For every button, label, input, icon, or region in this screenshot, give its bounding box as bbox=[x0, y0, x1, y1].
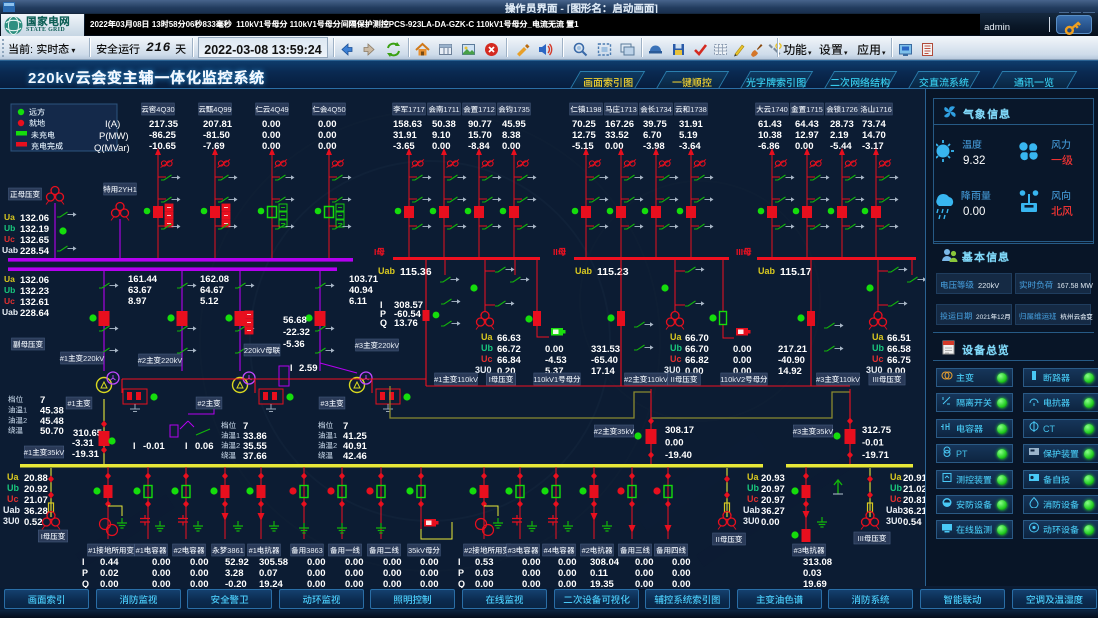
svg-text:Uab: Uab bbox=[378, 264, 396, 277]
svg-text:-3.64: -3.64 bbox=[679, 138, 701, 152]
svg-text:会南1711: 会南1711 bbox=[428, 104, 459, 115]
svg-text:110kV1号母分: 110kV1号母分 bbox=[533, 374, 581, 385]
svg-text:115.17: 115.17 bbox=[780, 264, 812, 279]
svg-text:II母: II母 bbox=[553, 246, 567, 258]
svg-text:远方: 远方 bbox=[29, 107, 45, 118]
svg-text:-3.98: -3.98 bbox=[643, 138, 665, 152]
svg-text:-19.31: -19.31 bbox=[72, 446, 100, 460]
svg-text:I母压变: I母压变 bbox=[489, 374, 514, 385]
svg-text:绕温: 绕温 bbox=[8, 425, 23, 436]
svg-text:-10.65: -10.65 bbox=[149, 138, 177, 152]
svg-text:Q(MVar): Q(MVar) bbox=[94, 140, 130, 154]
svg-text:17.14: 17.14 bbox=[591, 363, 615, 377]
svg-text:Uab: Uab bbox=[2, 244, 18, 256]
svg-text:#3主变220kV: #3主变220kV bbox=[355, 340, 400, 351]
svg-text:5.12: 5.12 bbox=[200, 293, 219, 307]
svg-text:会长1734: 会长1734 bbox=[640, 104, 672, 115]
svg-text:I母压变: I母压变 bbox=[41, 531, 66, 542]
svg-text:马庄1713: 马庄1713 bbox=[605, 104, 637, 115]
svg-text:2.59: 2.59 bbox=[299, 360, 318, 374]
svg-text:油温1: 油温1 bbox=[8, 404, 27, 415]
svg-text:大云1740: 大云1740 bbox=[756, 104, 788, 115]
svg-text:-19.71: -19.71 bbox=[862, 447, 890, 461]
svg-text:228.54: 228.54 bbox=[20, 243, 50, 257]
svg-text:I: I bbox=[185, 439, 188, 452]
svg-text:仁会4Q50: 仁会4Q50 bbox=[312, 104, 345, 115]
svg-text:0.06: 0.06 bbox=[195, 438, 214, 452]
svg-text:仁镇1198: 仁镇1198 bbox=[570, 104, 601, 115]
svg-text:0.00: 0.00 bbox=[502, 138, 521, 152]
svg-text:#1主变220kV: #1主变220kV bbox=[60, 353, 105, 364]
svg-text:绕温: 绕温 bbox=[221, 450, 236, 461]
svg-text:#2主变220kV: #2主变220kV bbox=[138, 355, 183, 366]
svg-text:I: I bbox=[133, 439, 136, 452]
svg-text:3U0: 3U0 bbox=[3, 514, 20, 527]
svg-text:#1主变: #1主变 bbox=[67, 398, 90, 409]
svg-text:-7.69: -7.69 bbox=[203, 138, 225, 152]
svg-text:115.23: 115.23 bbox=[597, 264, 629, 279]
svg-text:会锁1726: 会锁1726 bbox=[826, 104, 858, 115]
svg-text:3U0: 3U0 bbox=[743, 514, 760, 527]
svg-text:I: I bbox=[290, 361, 293, 374]
svg-text:50.70: 50.70 bbox=[40, 423, 64, 437]
svg-text:0.00: 0.00 bbox=[795, 138, 814, 152]
svg-text:充电完成: 充电完成 bbox=[31, 141, 63, 152]
svg-text:-0.01: -0.01 bbox=[143, 438, 165, 452]
svg-text:6.11: 6.11 bbox=[349, 293, 368, 307]
svg-text:#1主变110kV: #1主变110kV bbox=[434, 374, 478, 385]
svg-text:#2主变35kV: #2主变35kV bbox=[594, 426, 634, 437]
svg-text:金置1715: 金置1715 bbox=[791, 104, 823, 115]
svg-text:绕温: 绕温 bbox=[318, 450, 333, 461]
svg-text:-3.17: -3.17 bbox=[862, 138, 884, 152]
svg-text:0.00: 0.00 bbox=[432, 138, 451, 152]
svg-text:0.54: 0.54 bbox=[903, 514, 922, 528]
svg-text:就地: 就地 bbox=[29, 118, 45, 129]
svg-text:云甄4Q99: 云甄4Q99 bbox=[198, 104, 231, 115]
svg-text:正母压变: 正母压变 bbox=[10, 189, 40, 200]
svg-text:II母压变: II母压变 bbox=[671, 374, 698, 385]
svg-text:37.66: 37.66 bbox=[243, 448, 267, 462]
svg-text:III母压变: III母压变 bbox=[858, 533, 887, 544]
svg-text:#3主变110kV: #3主变110kV bbox=[816, 374, 860, 385]
svg-text:III母: III母 bbox=[736, 246, 752, 258]
svg-text:云窖4Q30: 云窖4Q30 bbox=[141, 104, 174, 115]
svg-text:-19.40: -19.40 bbox=[665, 447, 692, 461]
svg-text:Uab: Uab bbox=[758, 264, 776, 277]
svg-text:42.46: 42.46 bbox=[343, 448, 367, 462]
svg-text:#2主变: #2主变 bbox=[197, 398, 220, 409]
svg-text:会钧1735: 会钧1735 bbox=[498, 104, 530, 115]
svg-text:李军1717: 李军1717 bbox=[393, 104, 425, 115]
svg-text:油温2: 油温2 bbox=[8, 415, 27, 426]
svg-text:110kV2号母分: 110kV2号母分 bbox=[720, 374, 768, 385]
svg-text:-5.44: -5.44 bbox=[830, 138, 852, 152]
svg-text:Uab: Uab bbox=[2, 306, 18, 318]
svg-text:228.64: 228.64 bbox=[20, 305, 50, 319]
svg-text:II母压变: II母压变 bbox=[716, 534, 743, 545]
svg-text:特用2YH1: 特用2YH1 bbox=[102, 184, 137, 195]
svg-text:#3主变35kV: #3主变35kV bbox=[793, 426, 833, 437]
svg-text:-3.65: -3.65 bbox=[393, 138, 415, 152]
svg-text:-6.86: -6.86 bbox=[758, 138, 780, 152]
svg-text:副母压变: 副母压变 bbox=[13, 339, 43, 350]
svg-text:0.00: 0.00 bbox=[761, 514, 780, 528]
svg-text:-5.15: -5.15 bbox=[572, 138, 594, 152]
svg-text:Uab: Uab bbox=[575, 264, 593, 277]
svg-text:#1主变35kV: #1主变35kV bbox=[24, 447, 64, 458]
svg-text:档位: 档位 bbox=[8, 394, 23, 405]
svg-text:洛山1716: 洛山1716 bbox=[860, 104, 892, 115]
svg-text:115.36: 115.36 bbox=[400, 264, 432, 279]
svg-text:8.97: 8.97 bbox=[128, 293, 147, 307]
svg-text:3U0: 3U0 bbox=[886, 514, 903, 527]
svg-text:220kV母联: 220kV母联 bbox=[244, 345, 281, 356]
svg-text:#3主变: #3主变 bbox=[320, 398, 343, 409]
svg-text:会置1712: 会置1712 bbox=[463, 104, 495, 115]
svg-text:未充电: 未充电 bbox=[30, 130, 55, 141]
svg-text:0.52: 0.52 bbox=[24, 514, 43, 528]
svg-text:-5.36: -5.36 bbox=[283, 336, 305, 350]
svg-text:#2主变110kV: #2主变110kV bbox=[624, 374, 668, 385]
svg-text:14.92: 14.92 bbox=[778, 363, 802, 377]
svg-text:仁云4Q49: 仁云4Q49 bbox=[255, 104, 288, 115]
svg-text:13.76: 13.76 bbox=[394, 315, 418, 329]
svg-text:III母压变: III母压变 bbox=[873, 374, 902, 385]
svg-text:Q: Q bbox=[380, 316, 387, 329]
svg-text:云和1738: 云和1738 bbox=[675, 104, 707, 115]
svg-text:0.00: 0.00 bbox=[318, 138, 337, 152]
svg-text:I母: I母 bbox=[374, 246, 385, 258]
